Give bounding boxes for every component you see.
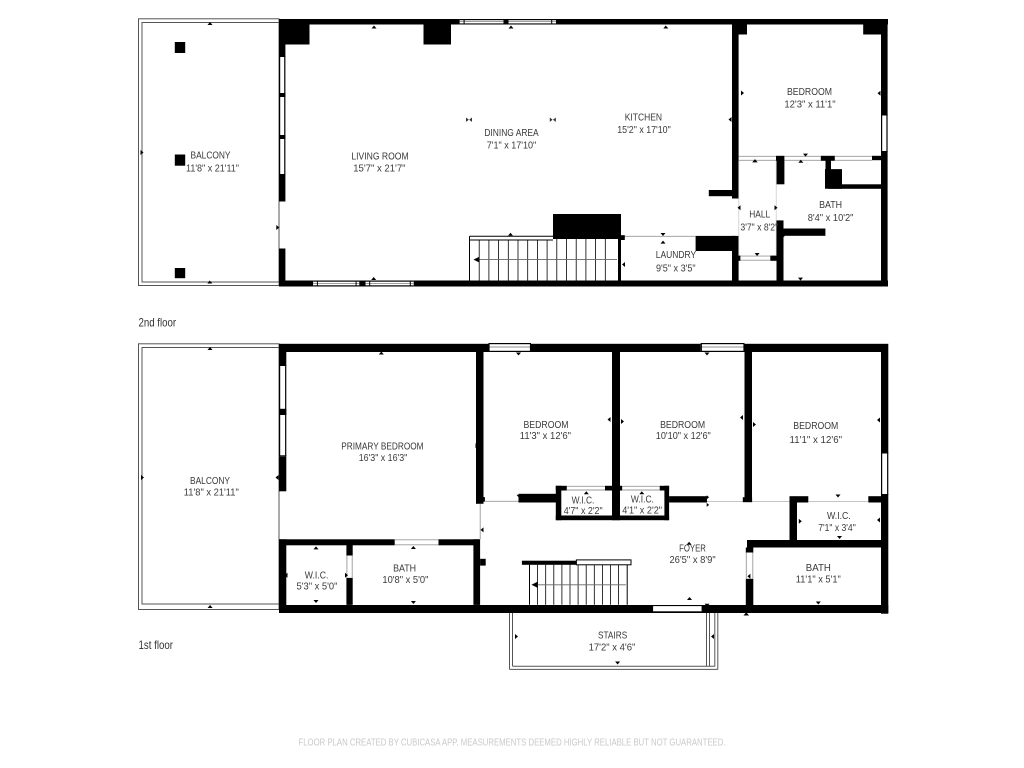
svg-text:9'5" x 3'5": 9'5" x 3'5": [656, 263, 696, 274]
svg-text:BEDROOM: BEDROOM: [660, 420, 705, 431]
svg-text:4'7" x 2'2": 4'7" x 2'2": [564, 506, 603, 517]
svg-text:11'1" x 5'1": 11'1" x 5'1": [796, 574, 841, 585]
svg-text:17'2" x 4'6": 17'2" x 4'6": [589, 643, 636, 654]
svg-text:BALCONY: BALCONY: [190, 476, 230, 487]
svg-text:KITCHEN: KITCHEN: [625, 113, 662, 124]
svg-text:PRIMARY BEDROOM: PRIMARY BEDROOM: [341, 442, 423, 453]
svg-text:BATH: BATH: [806, 563, 831, 574]
svg-text:W.I.C.: W.I.C.: [305, 570, 329, 581]
svg-text:W.I.C.: W.I.C.: [631, 495, 654, 506]
svg-text:3'7" x 8'2": 3'7" x 8'2": [740, 223, 778, 234]
svg-text:2nd floor: 2nd floor: [139, 315, 177, 329]
svg-text:11'3" x 12'6": 11'3" x 12'6": [520, 431, 572, 442]
svg-text:8'4" x 10'2": 8'4" x 10'2": [808, 213, 854, 224]
svg-text:15'7" x 21'7": 15'7" x 21'7": [353, 164, 406, 175]
svg-text:4'1" x 2'2": 4'1" x 2'2": [622, 506, 662, 517]
svg-text:DINING AREA: DINING AREA: [484, 128, 538, 139]
svg-text:BEDROOM: BEDROOM: [793, 421, 838, 432]
svg-text:10'10" x 12'6": 10'10" x 12'6": [656, 431, 711, 442]
svg-text:HALL: HALL: [749, 209, 770, 220]
svg-text:W.I.C.: W.I.C.: [827, 511, 851, 522]
svg-text:BATH: BATH: [819, 200, 842, 211]
svg-text:11'8" x 21'11": 11'8" x 21'11": [184, 487, 239, 498]
svg-text:FLOOR PLAN CREATED BY CUBICASA: FLOOR PLAN CREATED BY CUBICASA APP. MEAS…: [299, 737, 726, 748]
svg-text:BEDROOM: BEDROOM: [787, 87, 832, 98]
svg-text:LAUNDRY: LAUNDRY: [656, 250, 697, 261]
svg-text:15'2" x 17'10": 15'2" x 17'10": [617, 125, 671, 136]
svg-text:BALCONY: BALCONY: [191, 151, 231, 162]
svg-text:7'1" x 3'4": 7'1" x 3'4": [818, 523, 856, 534]
svg-text:11'1" x 12'6": 11'1" x 12'6": [790, 435, 843, 446]
svg-text:BEDROOM: BEDROOM: [524, 420, 569, 431]
svg-text:7'1" x 17'10": 7'1" x 17'10": [487, 141, 537, 152]
svg-text:1st floor: 1st floor: [139, 638, 174, 652]
svg-text:FOYER: FOYER: [679, 544, 706, 555]
svg-text:BATH: BATH: [393, 564, 416, 575]
svg-text:11'8" x 21'11": 11'8" x 21'11": [186, 163, 239, 174]
svg-text:16'3" x 16'3": 16'3" x 16'3": [359, 453, 408, 464]
svg-text:W.I.C.: W.I.C.: [572, 496, 595, 507]
svg-text:10'8" x 5'0": 10'8" x 5'0": [382, 575, 428, 586]
svg-text:LIVING ROOM: LIVING ROOM: [351, 152, 408, 163]
svg-text:5'3" x 5'0": 5'3" x 5'0": [297, 582, 338, 593]
svg-text:STAIRS: STAIRS: [598, 630, 627, 641]
svg-text:26'5" x 8'9": 26'5" x 8'9": [669, 555, 716, 566]
svg-text:12'3" x 11'1": 12'3" x 11'1": [784, 100, 836, 111]
